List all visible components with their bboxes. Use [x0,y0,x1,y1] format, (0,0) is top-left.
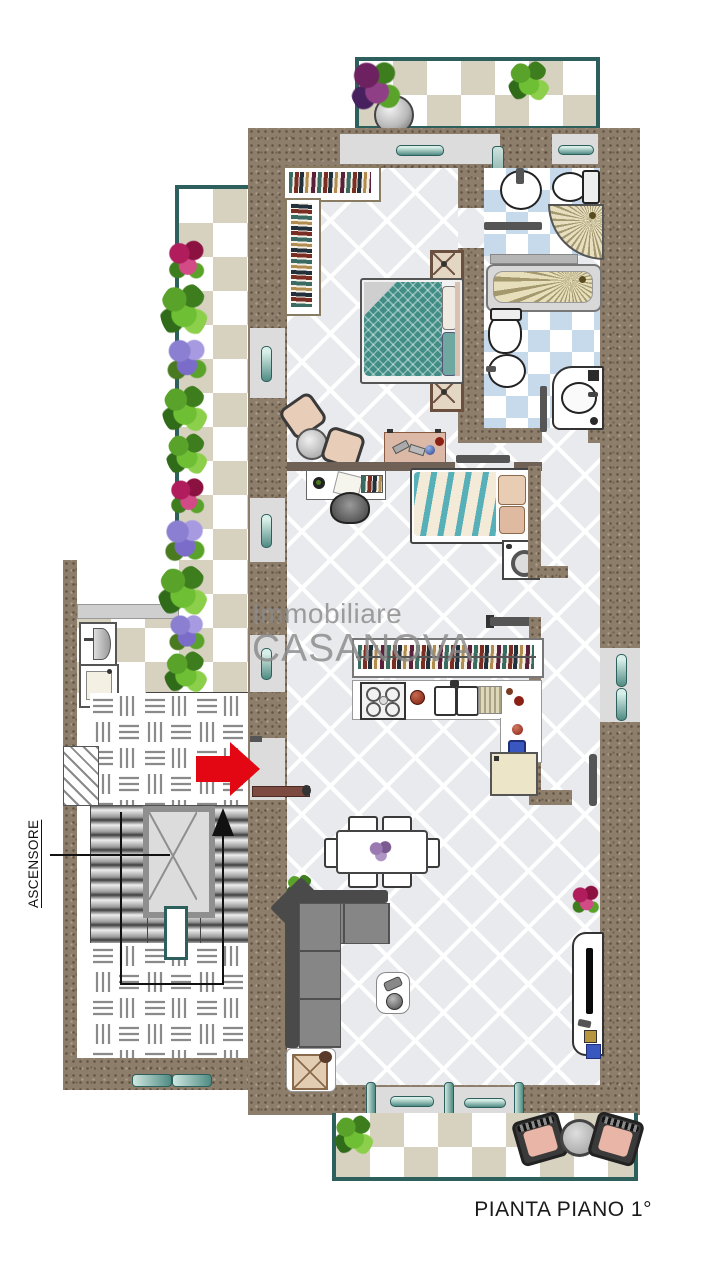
console-table [384,432,446,464]
decor-box [586,1044,601,1059]
wall-stub [528,566,568,578]
plant [164,336,210,386]
floor-plan-canvas: ASCENSORE [0,0,705,1280]
radiator [589,754,597,806]
window-handle [261,346,272,382]
window-handle [616,688,627,721]
bath-shelf [490,254,578,264]
pot [410,690,425,705]
sofa-back [285,898,299,1048]
kitchen-sink [456,686,479,716]
plant [166,238,208,286]
flowers [570,884,602,918]
jar [514,696,524,706]
plant [168,476,208,520]
remote [577,1019,591,1029]
plant [162,384,208,436]
bookshelf [285,198,321,316]
drainboard [478,686,502,714]
desk-chair [330,492,370,524]
utility-sink [79,622,117,666]
pillow [498,475,526,505]
stairwell-window [172,1074,212,1087]
table-flowers [366,840,396,864]
window-handle [261,648,272,680]
kitchen-sink [434,686,457,716]
sink [500,170,542,210]
bidet [488,354,526,388]
wall-section-hatch [63,746,99,806]
elevator-door [164,906,188,960]
bathroom1-door-opening [458,208,484,248]
window-handle [558,145,594,155]
single-bed [410,468,532,544]
stairs-path-line [120,812,122,985]
door-hinge [302,785,311,796]
plan-caption: PIANTA PIANO 1° [410,1198,652,1222]
toilet-tank [582,170,600,204]
bathroom-south-wall [588,428,600,443]
coffee-table [376,972,410,1014]
duvet-fold [364,282,396,316]
entrance-arrow-icon [230,742,260,796]
pillow [499,506,525,534]
landing-floor [90,693,248,805]
window-handle [261,514,272,548]
bathroom2-door-leaf [540,386,547,432]
bathroom1-door-leaf [484,222,542,230]
tv-cabinet [572,932,604,1056]
refrigerator [490,752,538,796]
plant [350,58,402,116]
east-wall [600,128,640,1115]
bathroom-south-wall [458,428,542,443]
door-handle [396,145,444,156]
faucet [450,680,459,687]
vanity-sink [552,366,604,430]
plant [166,432,208,478]
cooktop [360,682,406,720]
kitchen-shelf [352,638,544,678]
bookshelf [283,166,381,202]
plant [334,1114,374,1158]
stairs-path-line [120,983,224,985]
bathtub [486,264,602,312]
elevator-label: ASCENSORE [26,808,41,908]
landing-floor [90,943,248,1058]
dining-table [336,830,428,874]
elevator-leader-line [50,854,170,856]
door-handle [464,1098,506,1108]
balcony-west-wall [63,560,77,1090]
stairwell-window [132,1074,172,1087]
plant [508,60,550,104]
jar [506,688,513,695]
elevator-shaft [143,806,215,918]
duvet [414,472,496,536]
stairs-up-arrow-icon [212,808,234,836]
kitchen-door-leaf [490,617,532,626]
bedroom2-door-leaf [456,455,510,463]
armchair [286,1048,336,1092]
sofa-back [299,890,388,903]
door-handle [390,1096,434,1107]
west-wall [248,128,287,1085]
stairs-path-line [222,834,224,985]
decor-box [584,1030,597,1043]
toilet-tank [490,308,522,321]
plant [160,282,208,340]
double-bed [360,278,464,384]
plant [164,650,208,696]
tv-screen [586,948,593,1014]
jar [512,724,523,735]
plant [162,516,208,568]
sofa-seat [299,903,341,1048]
window-handle [616,654,627,687]
bedroom2-east-wall [528,466,541,578]
entrance-arrow-shaft [196,756,230,782]
